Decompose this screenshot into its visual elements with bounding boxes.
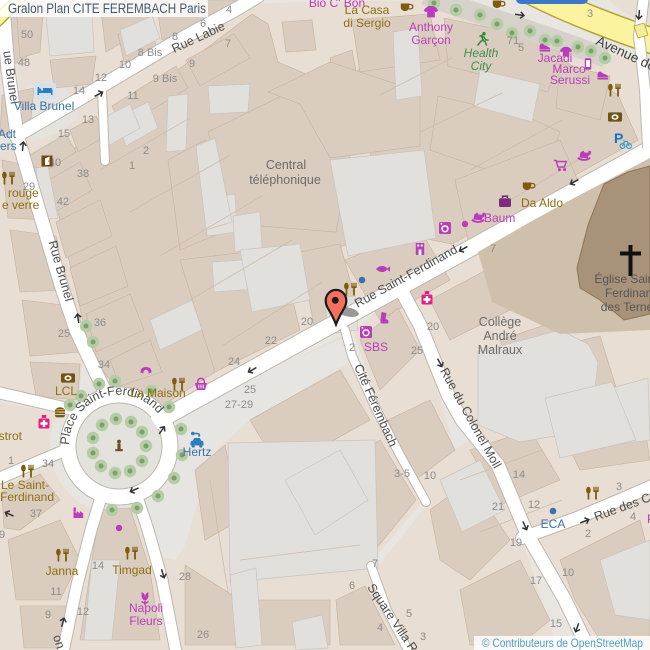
svg-text:1: 1 [8,455,14,467]
svg-text:17: 17 [530,575,542,587]
svg-text:14: 14 [513,469,525,481]
svg-text:50: 50 [21,29,33,41]
svg-text:Collège: Collège [479,315,521,329]
svg-text:14: 14 [92,560,104,572]
svg-text:© Contributeurs de OpenStreetM: © Contributeurs de OpenStreetMap [482,636,643,650]
svg-text:48: 48 [18,57,30,69]
svg-text:des Ternes: des Ternes [601,300,650,314]
svg-text:22: 22 [265,335,277,347]
svg-text:SBS: SBS [364,340,388,354]
svg-text:7: 7 [490,243,496,255]
svg-text:26: 26 [197,629,209,641]
svg-text:Hertz: Hertz [183,445,212,459]
svg-text:4: 4 [377,622,383,634]
svg-text:9: 9 [45,609,51,621]
svg-text:10: 10 [119,59,131,71]
svg-text:25: 25 [58,328,70,340]
svg-text:12: 12 [95,72,107,84]
svg-text:20: 20 [427,321,439,333]
svg-text:La Casa: La Casa [345,3,390,17]
svg-text:istrot: istrot [0,429,23,443]
svg-text:10: 10 [562,567,574,579]
svg-text:6: 6 [200,18,206,30]
svg-text:Fleurs: Fleurs [129,614,162,628]
svg-text:City: City [471,59,493,73]
svg-text:12: 12 [77,606,89,618]
svg-text:6: 6 [349,580,355,592]
svg-text:Malraux: Malraux [478,343,523,357]
svg-text:Gralon Plan CITE FEREMBACH Par: Gralon Plan CITE FEREMBACH Paris [8,1,206,16]
svg-text:Health: Health [464,46,499,60]
svg-text:3: 3 [420,631,426,643]
svg-text:27-29: 27-29 [225,399,253,411]
svg-text:Anthony: Anthony [409,20,453,34]
svg-text:9: 9 [189,58,195,70]
svg-text:ECA: ECA [541,517,566,531]
svg-text:di Sergio: di Sergio [343,16,391,30]
svg-text:24: 24 [228,356,240,368]
svg-text:ners: ners [0,139,17,153]
svg-text:Serussi: Serussi [550,73,590,87]
svg-text:4: 4 [226,4,232,16]
svg-text:3: 3 [616,481,622,493]
svg-text:38: 38 [77,168,89,180]
svg-text:3: 3 [587,8,593,20]
svg-text:Ferdinand: Ferdinand [605,286,650,300]
svg-text:15: 15 [550,618,562,630]
svg-text:21: 21 [492,501,504,513]
svg-text:LCL: LCL [55,384,77,398]
svg-text:Baum: Baum [484,211,515,225]
svg-text:25: 25 [244,384,256,396]
svg-text:10: 10 [424,470,436,482]
svg-text:Da Aldo: Da Aldo [521,196,563,210]
svg-text:20: 20 [301,316,313,328]
svg-text:Timgad: Timgad [112,563,152,577]
svg-text:Central: Central [266,158,306,172]
svg-text:téléphonique: téléphonique [249,173,321,187]
svg-text:2: 2 [585,528,591,540]
svg-text:9 Bis: 9 Bis [153,73,178,85]
svg-text:34: 34 [42,458,54,470]
svg-text:2: 2 [349,342,355,354]
svg-text:11: 11 [127,90,138,102]
svg-text:7: 7 [225,38,231,50]
svg-text:28: 28 [179,571,191,583]
svg-text:11: 11 [50,586,61,598]
svg-text:Église Saint-: Église Saint- [594,271,650,286]
svg-text:25: 25 [411,345,423,357]
svg-text:Ferdinand: Ferdinand [0,490,54,504]
svg-text:2: 2 [143,145,149,157]
svg-text:5: 5 [518,42,524,54]
svg-text:Villa Brunel: Villa Brunel [14,99,74,113]
svg-text:8: 8 [172,31,178,43]
svg-text:e verre: e verre [2,198,40,212]
svg-text:3-5: 3-5 [394,468,410,480]
svg-text:4: 4 [630,511,636,523]
svg-text:1: 1 [129,160,135,172]
svg-text:34: 34 [98,359,110,371]
svg-text:Garçon: Garçon [411,33,450,47]
svg-text:Janna: Janna [46,564,79,578]
svg-text:5: 5 [406,608,412,620]
svg-text:7: 7 [372,558,378,570]
svg-text:13: 13 [82,114,94,126]
svg-text:42: 42 [57,196,69,208]
svg-text:19: 19 [510,537,522,549]
svg-text:14: 14 [73,85,85,97]
svg-text:12: 12 [528,499,540,511]
svg-text:André: André [483,329,516,343]
svg-text:37: 37 [30,508,42,520]
svg-text:15: 15 [58,128,70,140]
svg-text:36: 36 [94,317,106,329]
svg-text:8 Bis: 8 Bis [138,47,163,59]
svg-text:La Maison: La Maison [130,386,185,400]
svg-text:9: 9 [0,529,5,541]
